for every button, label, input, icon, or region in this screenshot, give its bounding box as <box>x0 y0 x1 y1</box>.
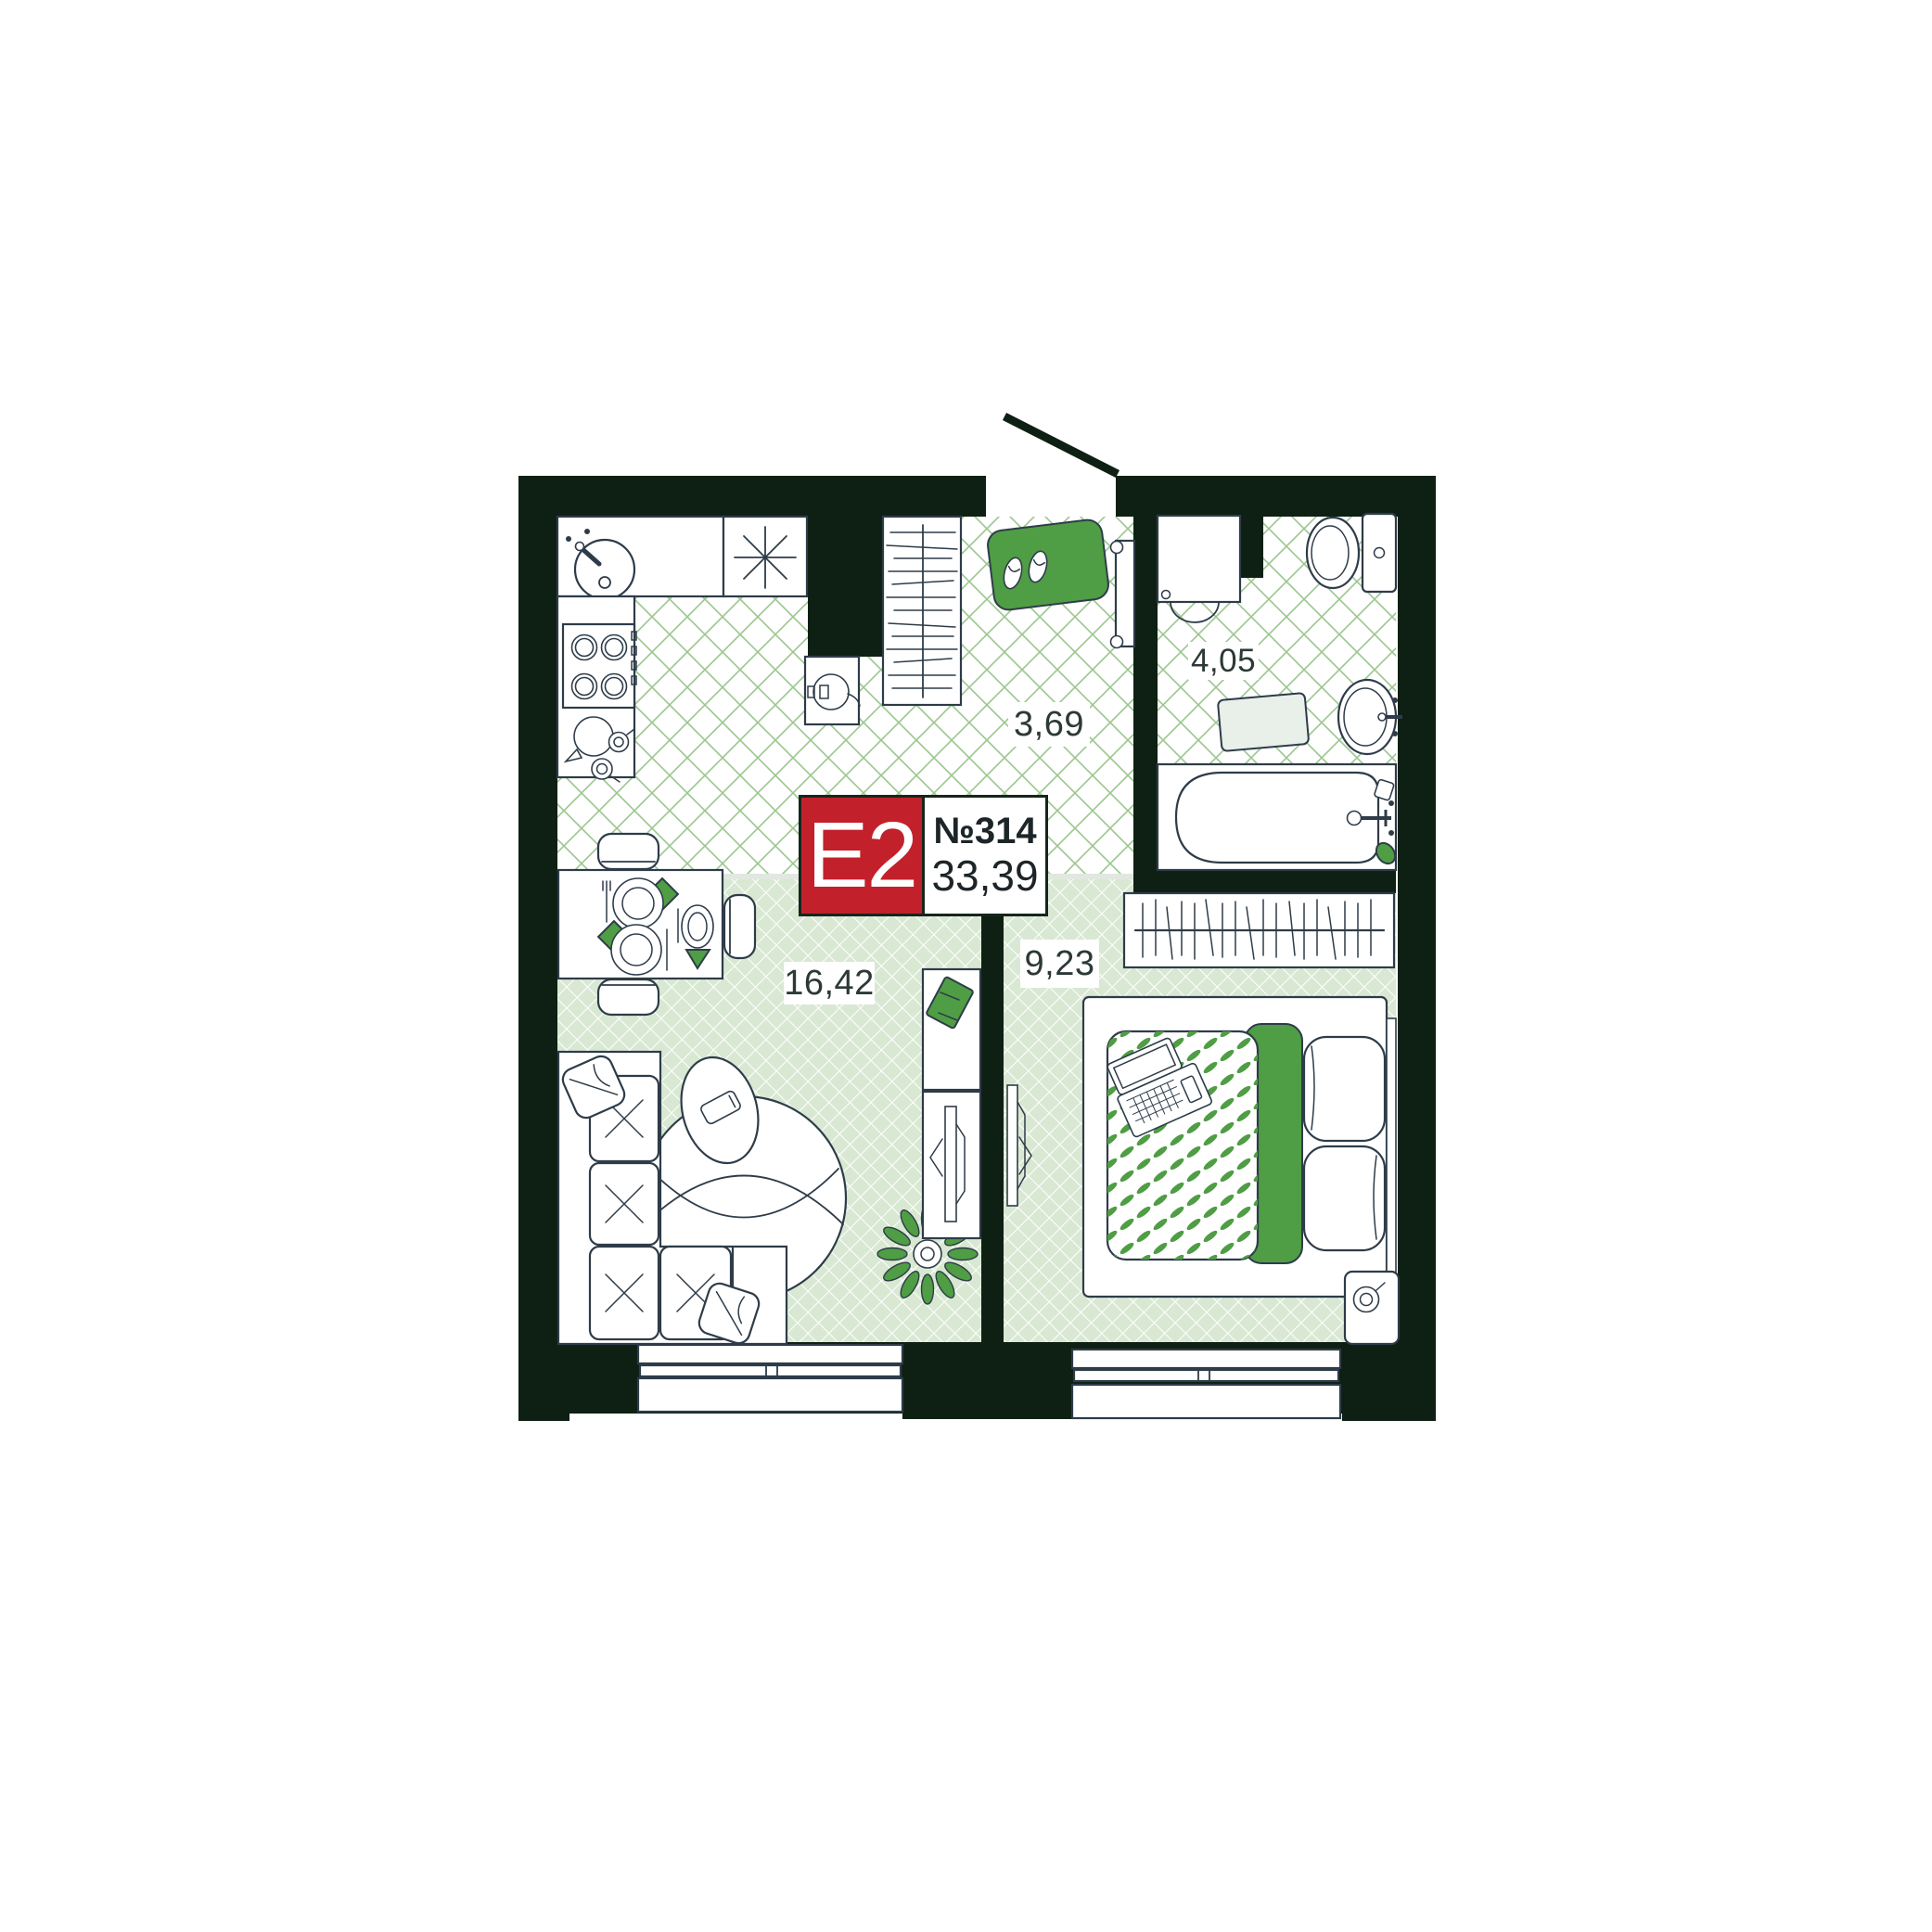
bottom-wall-middle-pier <box>902 1342 1072 1419</box>
entrance-door-leaf <box>1004 416 1118 474</box>
living-room-window <box>638 1345 902 1412</box>
bathroom-inner-stub <box>1240 517 1263 578</box>
floor-plan-canvas: 16,42 9,23 3,69 4,05 E2 №314 33,39 <box>0 0 1932 1932</box>
water-heater-icon <box>813 674 849 710</box>
tub-drain-icon <box>1348 812 1362 825</box>
room-label-bedroom: 9,23 <box>1020 940 1099 988</box>
bedroom-furniture <box>1083 893 1399 1344</box>
kitchen-hall-partition <box>808 476 883 657</box>
top-wall-left-segment <box>518 476 986 517</box>
room-label-bathroom: 4,05 <box>1188 642 1259 680</box>
hood-icon <box>735 527 796 588</box>
bathtub <box>1158 764 1399 870</box>
bedroom-area-value: 9,23 <box>1025 944 1095 984</box>
hallway-area-value: 3,69 <box>1014 705 1084 745</box>
bed-pillow-2 <box>1304 1146 1385 1250</box>
door-hinge-icon-2 <box>1111 636 1123 648</box>
room-label-hallway: 3,69 <box>1008 702 1090 747</box>
room-label-kitchen-living: 16,42 <box>784 962 875 1004</box>
cup-icon <box>1354 1287 1379 1312</box>
dining-chair-top <box>598 834 659 869</box>
unit-number: №314 <box>933 811 1036 851</box>
bed-pillow <box>1304 1037 1385 1141</box>
washing-machine <box>1158 516 1240 602</box>
dining-chair-right <box>724 895 755 958</box>
unit-type-badge: E2 <box>801 798 922 914</box>
bedroom-window <box>1072 1350 1340 1418</box>
top-wall-right-segment <box>1116 476 1436 517</box>
plate <box>613 878 663 928</box>
bathroom-area-value: 4,05 <box>1191 643 1256 680</box>
plate-2 <box>611 925 661 975</box>
living-room-tv <box>945 1107 956 1222</box>
bathroom-door-leaf <box>1116 541 1134 646</box>
small-plate <box>682 905 713 948</box>
living-bedroom-partition <box>981 872 1004 1342</box>
bathroom-left-wall <box>1133 517 1158 870</box>
bed-headboard <box>1387 1018 1396 1274</box>
bottom-wall-right-foot <box>1342 1342 1436 1421</box>
bath-mat <box>1218 693 1309 751</box>
right-wall <box>1398 476 1436 1421</box>
entrance-mat <box>986 518 1110 611</box>
kitchen-living-area-value: 16,42 <box>784 964 875 1004</box>
floor-plan-drawing <box>501 399 1456 1438</box>
bathroom-bottom-wall <box>1133 870 1396 893</box>
entrance-mat-group <box>986 518 1110 611</box>
bedroom-tv <box>1007 1085 1017 1206</box>
bottom-wall-left-foot <box>518 1342 569 1421</box>
unit-total-area: 33,39 <box>931 851 1038 901</box>
left-wall <box>518 476 557 1421</box>
unit-badge: E2 №314 33,39 <box>799 795 1048 916</box>
door-hinge-icon <box>1111 542 1123 554</box>
unit-info-panel: №314 33,39 <box>922 798 1045 914</box>
